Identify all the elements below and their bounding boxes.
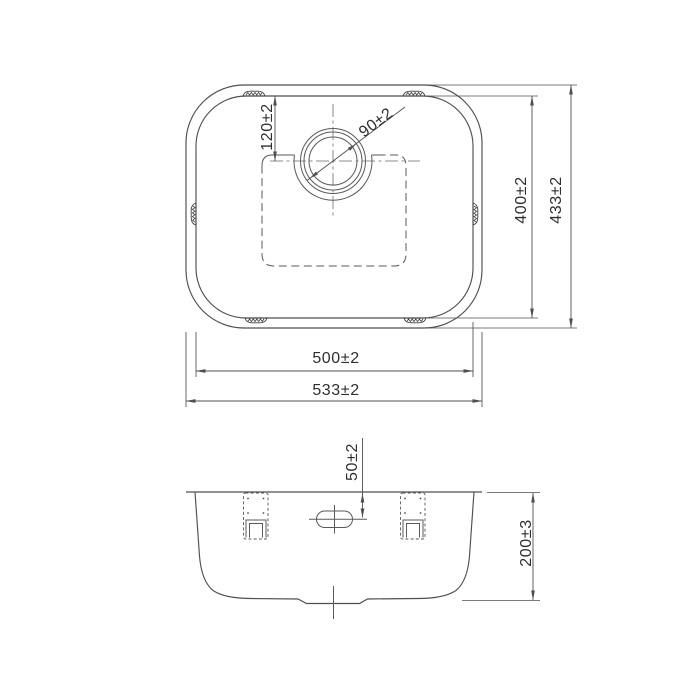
dim-arrow [361,494,365,503]
mounting-clip [243,91,265,96]
dim-arrow [348,144,356,151]
dim-label-overflow-offset: 50±2 [344,443,361,481]
mounting-clip [404,318,426,323]
dim-label-outer-width: 533±2 [312,382,359,399]
mounting-clip [403,91,425,96]
dim-label-inner-height: 400±2 [513,176,530,223]
sink-outer-rim-outline [186,85,482,328]
sink-dimension-drawing: 120±2 90±2 400±2 433±2 500±2 533±2 [0,0,700,700]
dim-label-inner-width: 500±2 [312,350,359,367]
bowl-bottom-hidden-outline [262,155,406,266]
mounting-clip [191,203,196,225]
overflow-slot [309,505,367,534]
mounting-clip [473,203,478,225]
technical-drawing-page: 120±2 90±2 400±2 433±2 500±2 533±2 [0,0,700,700]
mounting-clip-section [401,493,426,539]
sink-bowl-edge-outline [196,96,473,318]
section-view: 50±2 200±3 [186,438,540,619]
dim-arrow [361,509,365,518]
dim-label-drain-offset: 120±2 [259,103,276,150]
dim-label-outer-height: 433±2 [548,176,565,223]
plan-view: 120±2 90±2 400±2 433±2 500±2 533±2 [186,85,577,407]
mounting-clip [245,318,267,323]
mounting-clip-section [244,493,269,539]
bowl-bottom-corner [262,155,295,166]
dim-label-bowl-depth: 200±3 [518,519,535,566]
dim-label-drain-diameter: 90±2 [356,105,396,141]
